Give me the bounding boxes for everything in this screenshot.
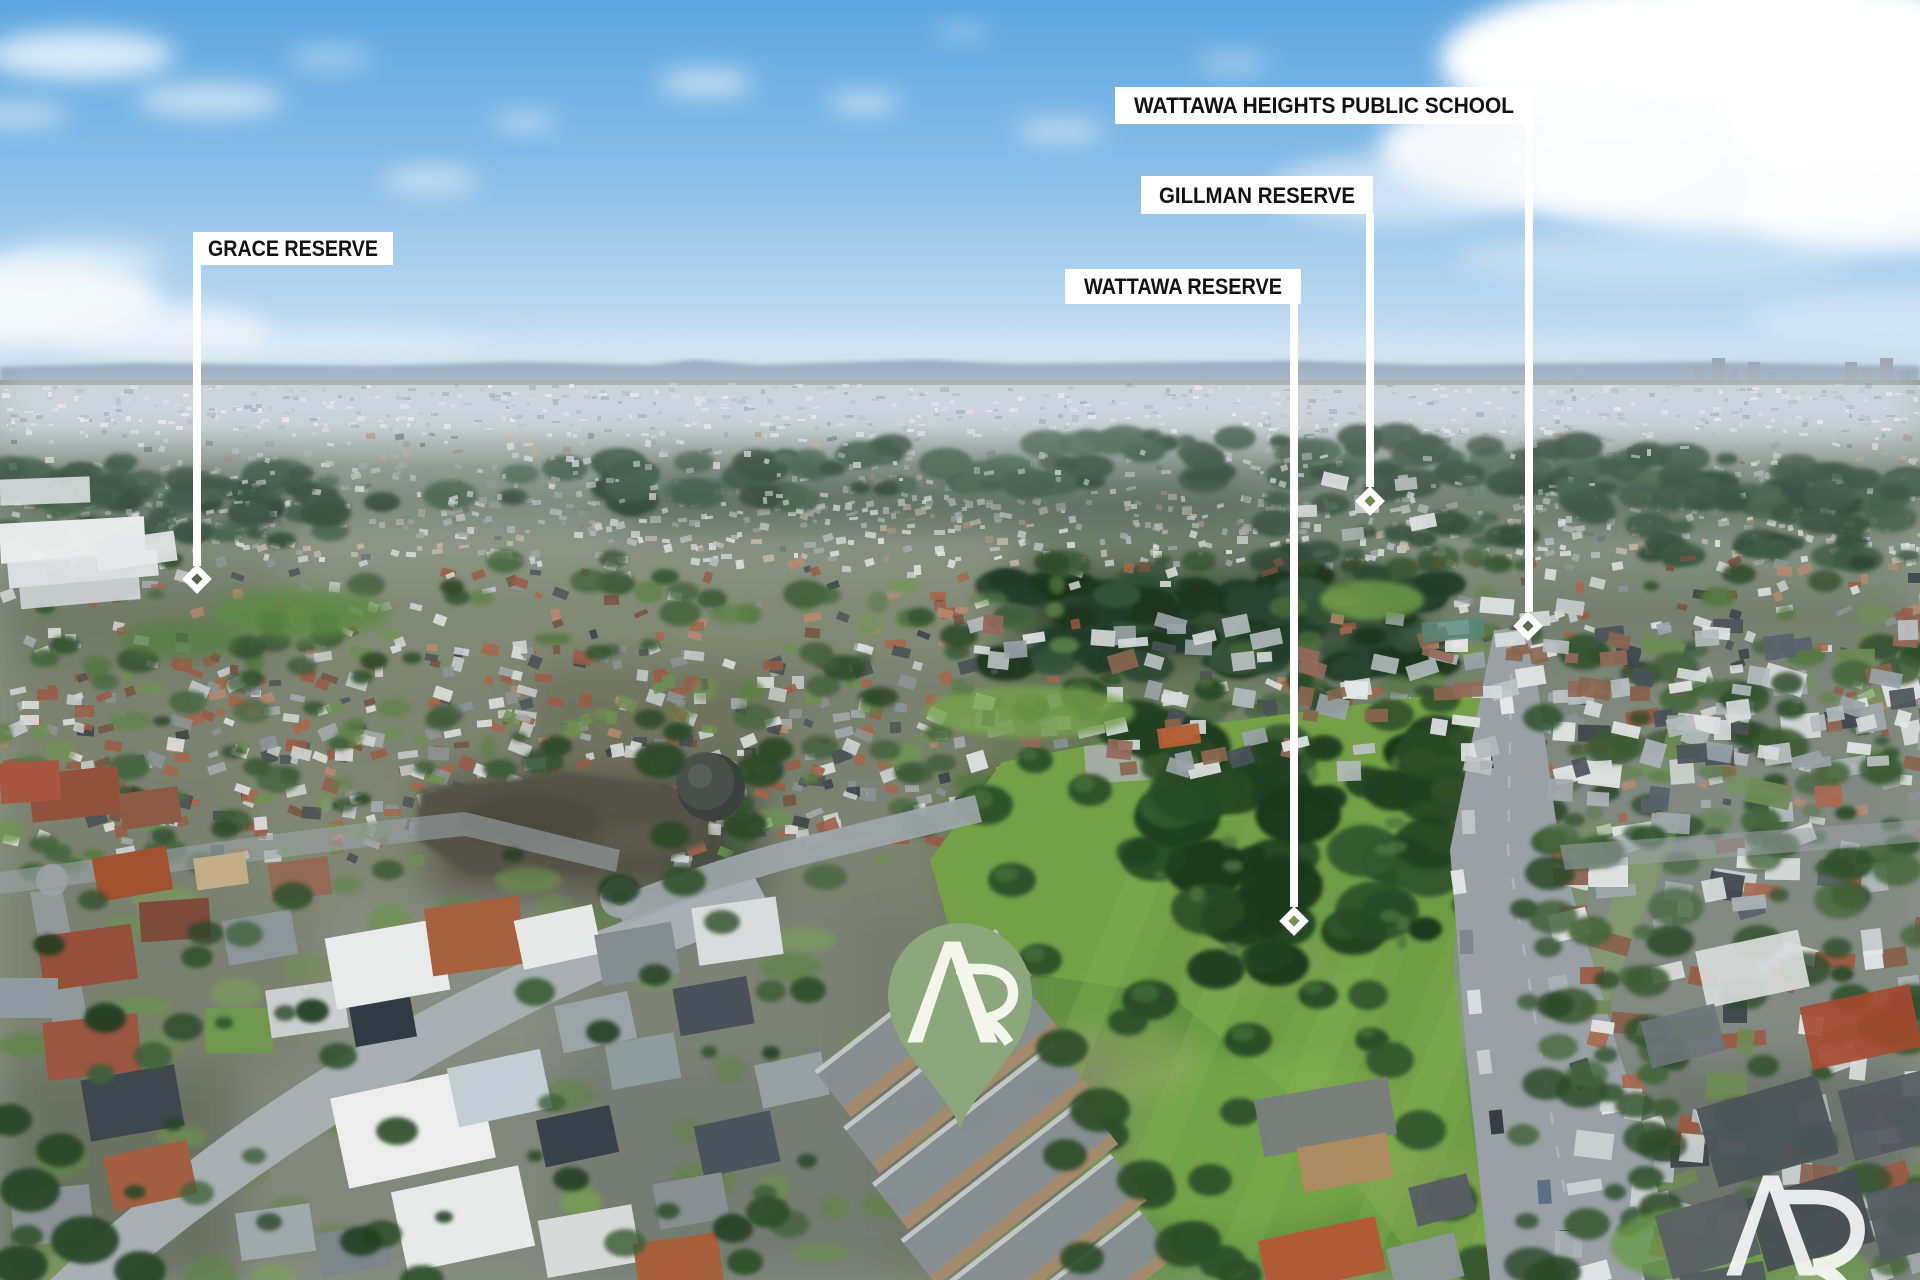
svg-text:GILLMAN RESERVE: GILLMAN RESERVE xyxy=(1159,183,1355,208)
svg-text:GRACE RESERVE: GRACE RESERVE xyxy=(208,236,378,261)
svg-text:WATTAWA HEIGHTS PUBLIC SCHOOL: WATTAWA HEIGHTS PUBLIC SCHOOL xyxy=(1134,93,1514,118)
svg-text:WATTAWA RESERVE: WATTAWA RESERVE xyxy=(1084,274,1282,299)
